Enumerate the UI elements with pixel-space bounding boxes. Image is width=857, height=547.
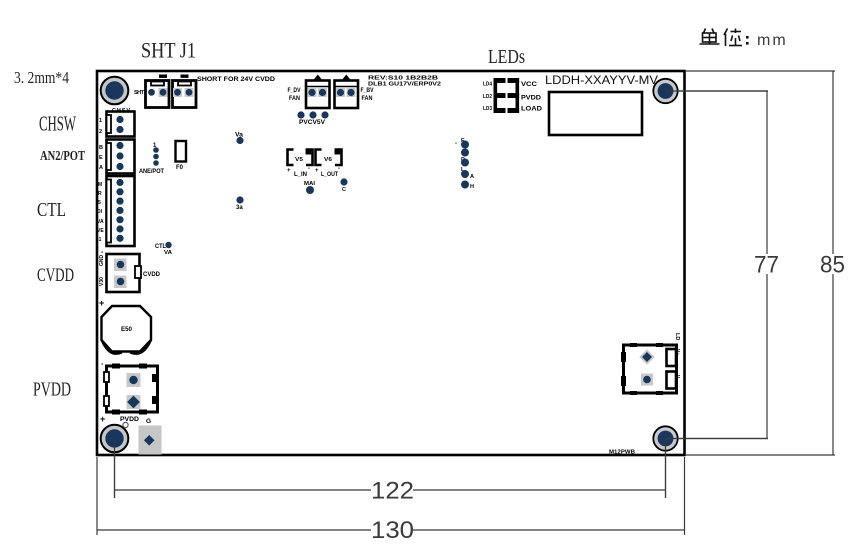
svg-text:LD4: LD4 [483, 82, 493, 88]
svg-text:SHT: SHT [134, 90, 145, 96]
svg-text:SHT J1: SHT J1 [141, 38, 196, 63]
svg-text:DLB1 GU17V/ERP0V2: DLB1 GU17V/ERP0V2 [368, 82, 441, 88]
svg-text:A: A [99, 165, 103, 171]
svg-text:PVDD: PVDD [33, 380, 71, 401]
svg-text:+: + [99, 298, 104, 308]
svg-text:CVDD: CVDD [143, 272, 161, 278]
svg-text:-1: -1 [97, 237, 102, 243]
svg-text:LD: LD [674, 333, 680, 340]
svg-text:A: A [470, 174, 474, 180]
svg-text:CVDD: CVDD [37, 265, 74, 286]
svg-text:85: 85 [820, 252, 845, 279]
svg-text:VA: VA [164, 250, 172, 256]
svg-text:GND: GND [99, 255, 105, 267]
svg-text:L_IN: L_IN [294, 172, 307, 178]
svg-text:+: + [287, 168, 291, 174]
svg-text:CHSW: CHSW [39, 112, 76, 136]
svg-text:DI: DI [97, 209, 103, 215]
svg-text:LD2: LD2 [483, 94, 492, 100]
svg-text:AN2/POT: AN2/POT [40, 149, 85, 164]
svg-text:-: - [338, 166, 340, 172]
svg-text:V5: V5 [295, 157, 303, 163]
svg-text:F0: F0 [176, 165, 184, 171]
svg-text:3a: 3a [236, 205, 243, 211]
svg-text:77: 77 [754, 252, 779, 279]
svg-text:130: 130 [371, 517, 414, 544]
svg-text:LDDH-XXAYYV-MV: LDDH-XXAYYV-MV [545, 73, 658, 87]
svg-text:H: H [470, 184, 474, 190]
svg-text:F_BV: F_BV [361, 88, 374, 94]
svg-text:ANE/POT: ANE/POT [139, 169, 164, 175]
svg-text:E50: E50 [121, 327, 133, 333]
svg-text:F_DV: F_DV [288, 88, 301, 94]
svg-text:M: M [98, 182, 102, 188]
svg-text:CTL: CTL [37, 199, 66, 221]
svg-text:B: B [99, 145, 103, 151]
svg-text:PVCV5V: PVCV5V [299, 120, 325, 126]
svg-text:122: 122 [371, 478, 414, 505]
svg-text:V6: V6 [324, 157, 332, 163]
svg-text:PVDD: PVDD [120, 417, 140, 423]
svg-text:SHORT FOR 24V CVDD: SHORT FOR 24V CVDD [197, 77, 276, 83]
svg-text:+: + [315, 168, 319, 174]
svg-text:V-: V- [674, 375, 680, 380]
svg-text:-: - [455, 141, 457, 147]
svg-text:C: C [342, 187, 346, 193]
svg-text:1: 1 [99, 118, 102, 124]
svg-text:VCC: VCC [521, 82, 538, 88]
svg-text:5: 5 [98, 200, 101, 206]
svg-text:2: 2 [99, 129, 102, 135]
svg-text:LD3: LD3 [483, 106, 492, 112]
svg-text:VE: VE [97, 228, 104, 234]
svg-text:G: G [146, 418, 151, 425]
svg-text:FAN: FAN [289, 96, 300, 102]
svg-text:3. 2mm*4: 3. 2mm*4 [14, 68, 69, 87]
svg-text:L_OUT: L_OUT [321, 172, 338, 178]
svg-text:LEDs: LEDs [488, 46, 525, 68]
svg-text:R: R [98, 191, 102, 197]
svg-text:+: + [100, 414, 105, 424]
svg-text:E: E [99, 155, 103, 161]
svg-text:VA: VA [97, 219, 104, 225]
svg-text:M12PWB: M12PWB [609, 450, 635, 456]
svg-text:-: - [308, 166, 310, 172]
svg-text:PVDD: PVDD [521, 96, 542, 102]
svg-text:LOAD: LOAD [521, 107, 543, 113]
svg-text:V30: V30 [99, 277, 105, 286]
svg-text:FAN: FAN [362, 96, 373, 102]
svg-text:V+: V+ [674, 349, 680, 355]
svg-text:mm: mm [757, 32, 788, 49]
